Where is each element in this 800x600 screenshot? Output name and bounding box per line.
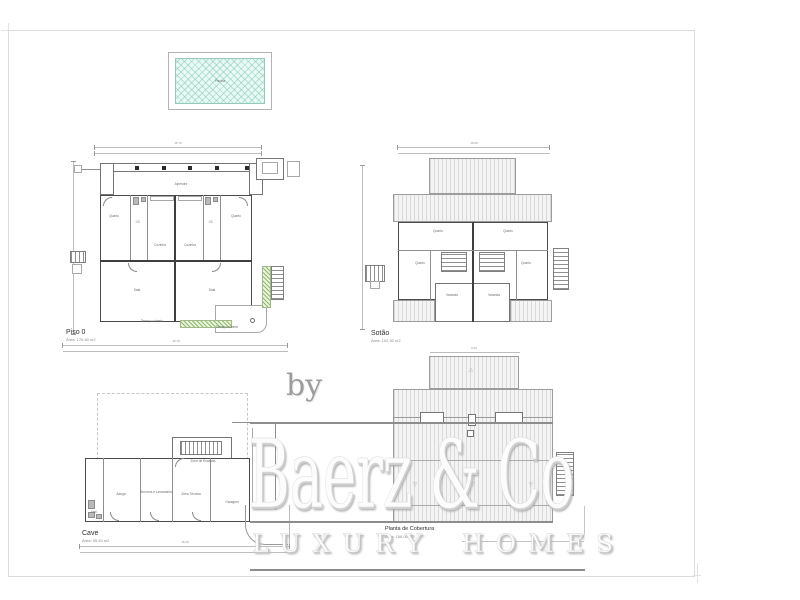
bath-fixture	[96, 514, 102, 519]
room-label: Terraço coberto	[216, 325, 238, 329]
landing	[72, 264, 82, 274]
roof-hatch	[393, 300, 435, 322]
stairs	[271, 266, 284, 300]
room-label: Sala	[134, 288, 140, 292]
roof-hatch	[393, 194, 552, 222]
room-label: Quarto	[109, 214, 119, 218]
dim-tick	[360, 329, 365, 330]
column	[135, 166, 139, 170]
dim-tick	[62, 343, 63, 348]
watermark-tagline: LUXURY HOMES	[252, 531, 625, 556]
room-label: Quarto	[415, 261, 425, 265]
room-label: Varanda	[446, 293, 458, 297]
dim-label: 10.95	[470, 142, 477, 145]
porch-band	[100, 163, 263, 172]
column	[188, 166, 192, 170]
dim-line-v	[362, 166, 363, 330]
plan-area-note: Área: 176.60 m2	[66, 338, 96, 342]
pier	[74, 165, 82, 173]
wall-line	[430, 250, 431, 300]
stairs	[553, 248, 569, 290]
room-label: Varanda	[488, 293, 500, 297]
watermark-brand: Baerz & Co	[248, 428, 574, 523]
room-label: Quarto	[503, 229, 513, 233]
stairs	[441, 252, 467, 272]
dim-tick	[397, 145, 398, 150]
pool-label: Piscina	[215, 79, 225, 83]
stairs	[180, 441, 222, 455]
watermark-by: by	[286, 368, 322, 403]
plan-area-note: Área: 95.40 m2	[82, 539, 109, 543]
column	[245, 166, 249, 170]
roof-hatch	[510, 300, 552, 322]
kitchen-counter	[150, 196, 174, 201]
porch-leg	[100, 163, 114, 195]
stairs	[365, 265, 385, 282]
room-label: Arrumos e Lavandaria	[140, 490, 171, 494]
room-label: Zona Técnica	[181, 492, 200, 496]
bath-fixture	[88, 500, 95, 509]
wall-line	[103, 458, 104, 522]
dim-tick	[549, 145, 550, 150]
dim-line	[398, 147, 550, 148]
room-label: I.S.	[136, 220, 141, 224]
room-label: Alpendre	[175, 182, 188, 186]
dim-label: 15.70	[172, 340, 179, 343]
room-label: Zona de Escadas	[191, 459, 216, 463]
dim-tick	[71, 161, 76, 162]
room-label: Cozinha	[154, 243, 166, 247]
sheet-corner-tick	[1, 30, 8, 31]
bath-fixture	[133, 197, 139, 205]
dim-tick	[79, 544, 80, 549]
watermark-rule	[250, 521, 553, 523]
room-label: Hall	[91, 510, 97, 514]
room-label: Quarto	[433, 229, 443, 233]
dim-tick	[287, 343, 288, 348]
wall-line	[203, 195, 204, 260]
dim-tick	[261, 145, 262, 150]
dim-line	[95, 147, 262, 148]
column	[162, 166, 166, 170]
room-label: I.S.	[209, 220, 214, 224]
room-label: Adega	[116, 492, 125, 496]
planter-strip	[262, 266, 271, 308]
roof-hatch	[429, 158, 516, 194]
dim-line	[398, 153, 550, 154]
wall-line	[398, 250, 548, 251]
room-label: Terraço coberto	[141, 319, 163, 323]
room-label: Sala	[209, 288, 215, 292]
plan-title: Sotão	[371, 330, 389, 337]
roof-hatch	[429, 356, 519, 389]
party-wall	[472, 222, 474, 322]
annex-detail	[262, 162, 278, 174]
stairs	[479, 252, 505, 272]
plan-title: Cave	[82, 530, 98, 537]
wall-line	[130, 195, 131, 260]
dim-line	[63, 345, 288, 346]
dim-tick	[360, 165, 365, 166]
annex-small	[287, 161, 300, 177]
wall-line	[220, 195, 221, 260]
bath-fixture	[213, 197, 218, 202]
bath-fixture	[205, 197, 211, 205]
terrace-column	[250, 318, 255, 323]
roof-slope-arrow: △	[469, 368, 473, 373]
wall-line	[147, 195, 148, 260]
column	[215, 166, 219, 170]
dim-label: 9.40	[471, 347, 477, 350]
dim-line	[95, 153, 262, 154]
dim-label: 15.40	[181, 541, 188, 544]
sheet-corner-tick	[8, 23, 9, 30]
room-label: Quarto	[521, 261, 531, 265]
dim-tick	[94, 145, 95, 150]
bath-fixture	[141, 197, 146, 202]
sheet-corner-tick	[697, 563, 698, 583]
dim-line	[63, 351, 288, 352]
landing	[370, 281, 380, 289]
stairs	[70, 251, 86, 263]
wall-line	[516, 250, 517, 300]
wall-line	[210, 458, 211, 522]
room-label: Quarto	[231, 214, 241, 218]
party-wall	[174, 195, 176, 322]
piso0-outer-wall	[100, 195, 252, 322]
dim-line-v	[73, 162, 74, 335]
kitchen-counter	[178, 196, 202, 201]
dim-tick	[261, 151, 262, 156]
plan-area-note: Área: 102.30 m2	[371, 339, 401, 343]
plan-title: Piso 0	[66, 329, 85, 336]
room-label: Cozinha	[184, 243, 196, 247]
watermark-rule	[250, 569, 585, 571]
floorplan-sheet: Piscina 15.70 Alpendre Quarto I.S.	[0, 0, 800, 600]
dim-tick	[94, 151, 95, 156]
wall-line	[100, 260, 252, 262]
wall-line	[172, 458, 173, 522]
dim-line	[430, 352, 520, 353]
dim-label: 15.70	[174, 142, 181, 145]
room-label: Garagem	[225, 500, 238, 504]
